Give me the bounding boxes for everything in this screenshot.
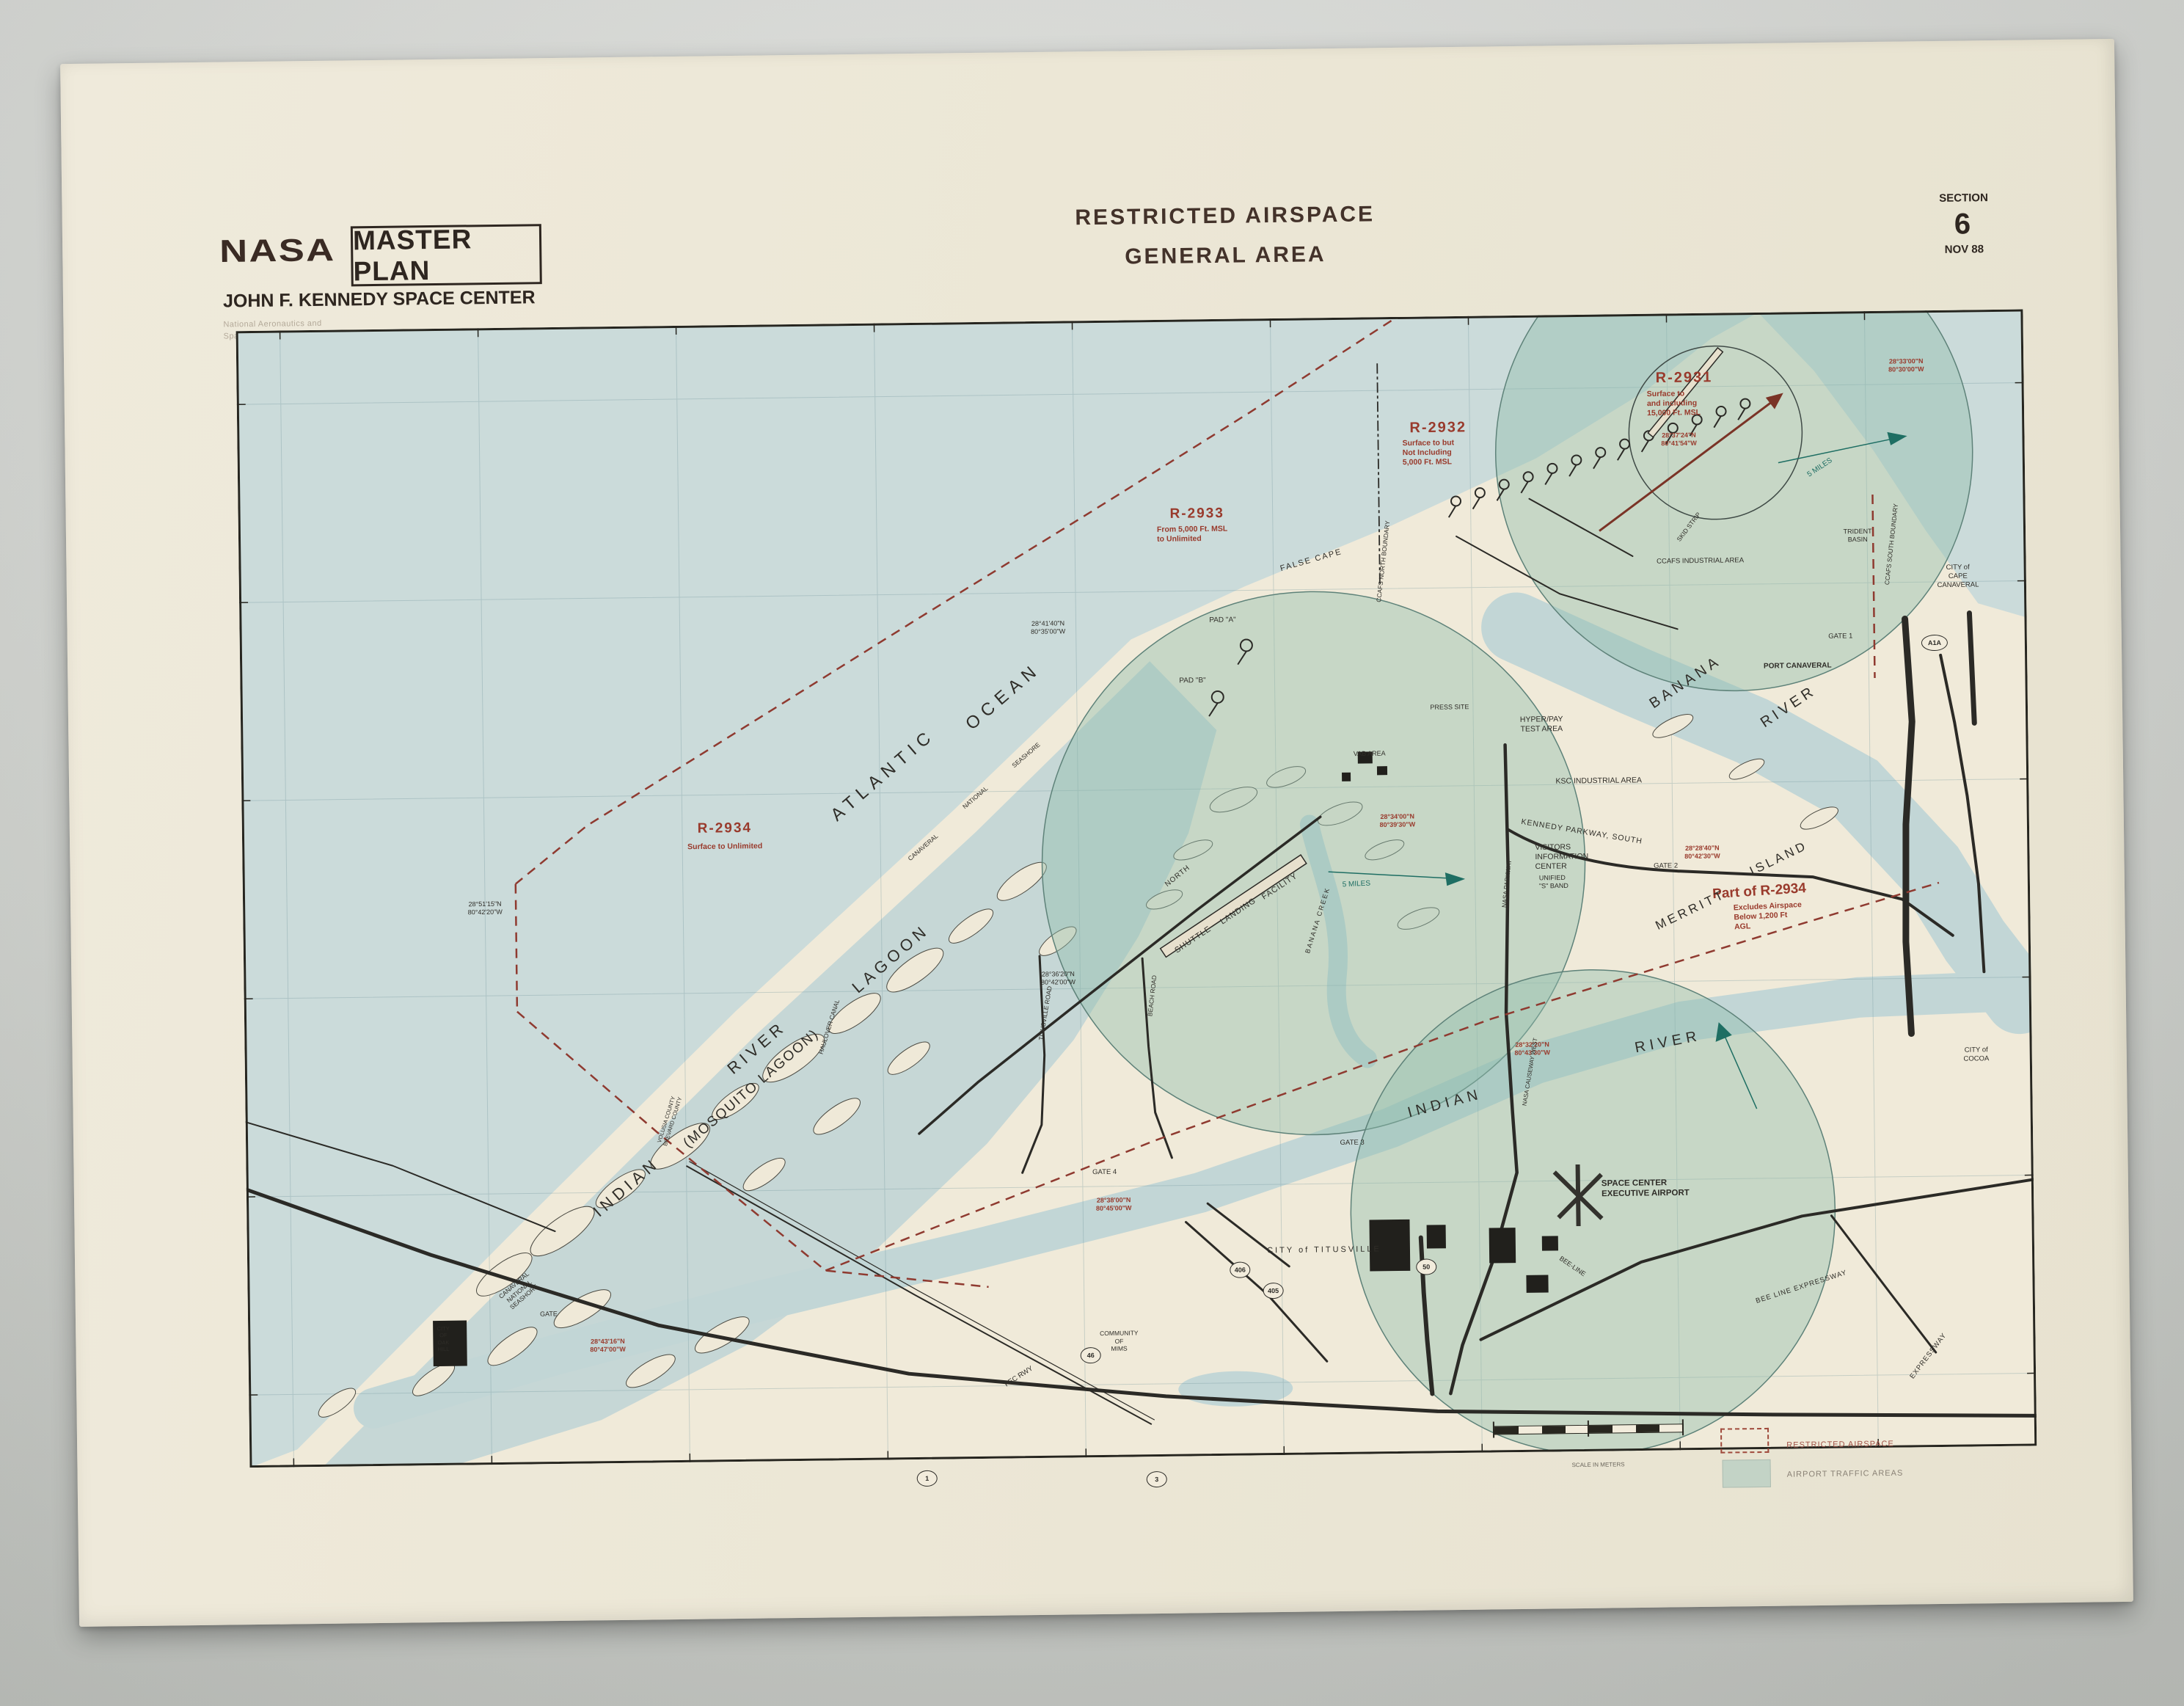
map-graphic	[236, 310, 2037, 1468]
agency-name-line1: National Aeronautics and	[223, 319, 321, 329]
map-label-scale-caption: SCALE IN METERS	[1572, 1461, 1625, 1469]
scale-tick-mid	[1588, 1421, 1589, 1437]
legend-restricted-airspace-swatch	[1720, 1428, 1769, 1454]
center-name: JOHN F. KENNEDY SPACE CENTER	[223, 287, 536, 312]
legend-airport-traffic-swatch	[1723, 1459, 1771, 1488]
sheet-title-line2: GENERAL AREA	[1125, 242, 1326, 269]
section-label: SECTION	[1939, 192, 1988, 205]
section-number: 6	[1954, 208, 1971, 241]
scale-tick-left	[1493, 1421, 1494, 1437]
master-plan-box: MASTER PLAN	[351, 224, 542, 286]
sheet-title-line1: RESTRICTED AIRSPACE	[1075, 202, 1375, 230]
nasa-worm-logo: NASA	[219, 231, 336, 270]
map-area	[236, 310, 2037, 1468]
map-label-legend-airport-traffic: AIRPORT TRAFFIC AREAS	[1787, 1469, 1904, 1481]
master-plan-title: MASTER PLAN	[353, 223, 540, 287]
section-date: NOV 88	[1945, 243, 1984, 256]
scale-tick-right	[1682, 1419, 1684, 1435]
route-shield-us-1: 1	[917, 1470, 938, 1487]
route-shield-sr-3: 3	[1147, 1471, 1167, 1487]
map-sheet: NASA National Aeronautics and Space Admi…	[60, 39, 2133, 1627]
